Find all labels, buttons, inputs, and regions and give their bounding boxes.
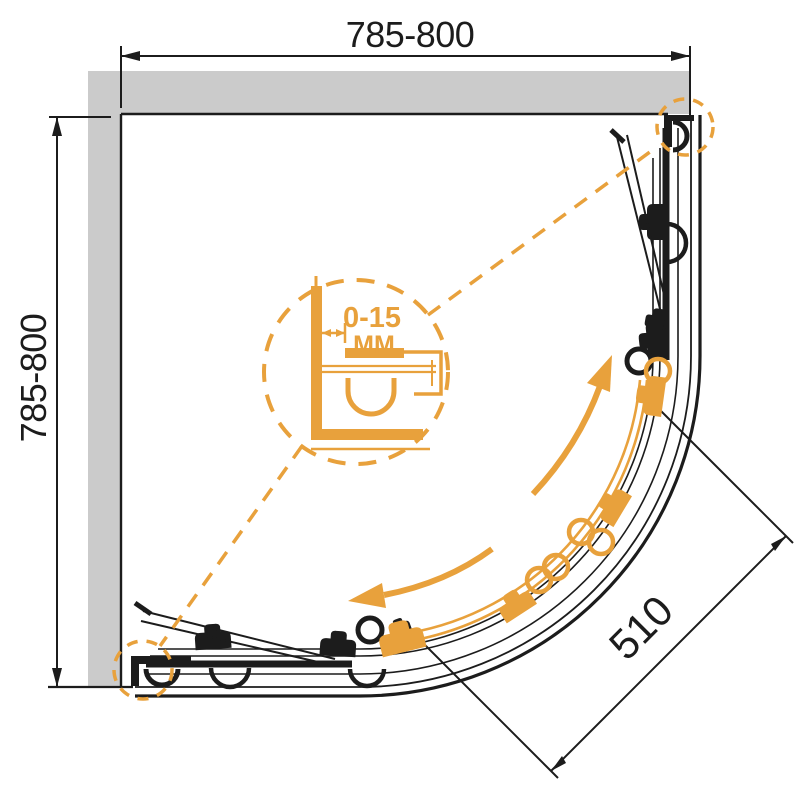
wall-left [88,71,121,687]
slide-arrow-down-head [348,583,386,608]
black-roller [194,623,232,650]
rim-mid [135,115,691,687]
wall-profile-top-right [664,115,694,150]
door-edge-line [143,611,335,659]
arrowhead [52,668,62,687]
detail-callout: 0-15 MM [264,276,448,464]
black-roller [319,630,357,657]
profile-d-bracket [673,122,687,150]
rail-clamp [667,224,686,262]
profile-foot [131,656,139,686]
extension-line [640,390,793,543]
fixed-glass-panels [150,148,660,656]
shower-enclosure-plan: 785-800 785-800 [0,0,800,789]
profile-foot [664,115,694,121]
dimension-label-left: 785-800 [13,314,54,443]
slide-arrow-up-curve [533,386,600,494]
detail-adjustment-label: 0-15 [343,302,401,334]
enclosure-rim [135,115,700,696]
dimension-label-door: 510 [600,587,682,669]
technical-drawing-canvas: 785-800 785-800 [0,0,800,789]
profile-section-bar [311,286,322,440]
dimension-line [551,536,786,771]
slide-arrow-up-head [587,355,612,392]
rail-clamp [211,668,249,687]
door-edge-cap [135,603,151,614]
clamp-hook [348,378,394,414]
wall-top [88,71,690,114]
rim-outer [135,115,700,696]
rim-inner [145,128,678,674]
glass-line [150,148,660,656]
detail-unit-label: MM [353,331,395,359]
slide-arrow-down-curve [384,549,492,595]
detail-markers [114,99,713,699]
orange-end-bracket [375,616,426,657]
black-roller [639,204,664,240]
slide-direction-arrows [348,355,612,608]
black-door-bottom-left [135,603,412,662]
dimension-door-510: 510 [410,390,793,778]
detail-leader-line [428,146,658,315]
dimension-label-top: 785-800 [346,14,475,55]
glass-line [158,158,653,649]
rail-clamp [350,669,384,686]
door-handle-ring [358,618,382,642]
arrowhead [671,51,690,61]
door-rails [146,128,686,687]
arrowhead [322,329,331,337]
detail-leader-line [160,446,302,646]
wall-profile-bottom-left [131,656,191,686]
arrowhead [52,117,62,136]
profile-bar [131,656,191,664]
profile-section-foot [311,429,423,440]
arrowhead [121,51,140,61]
extension-line [410,630,558,778]
